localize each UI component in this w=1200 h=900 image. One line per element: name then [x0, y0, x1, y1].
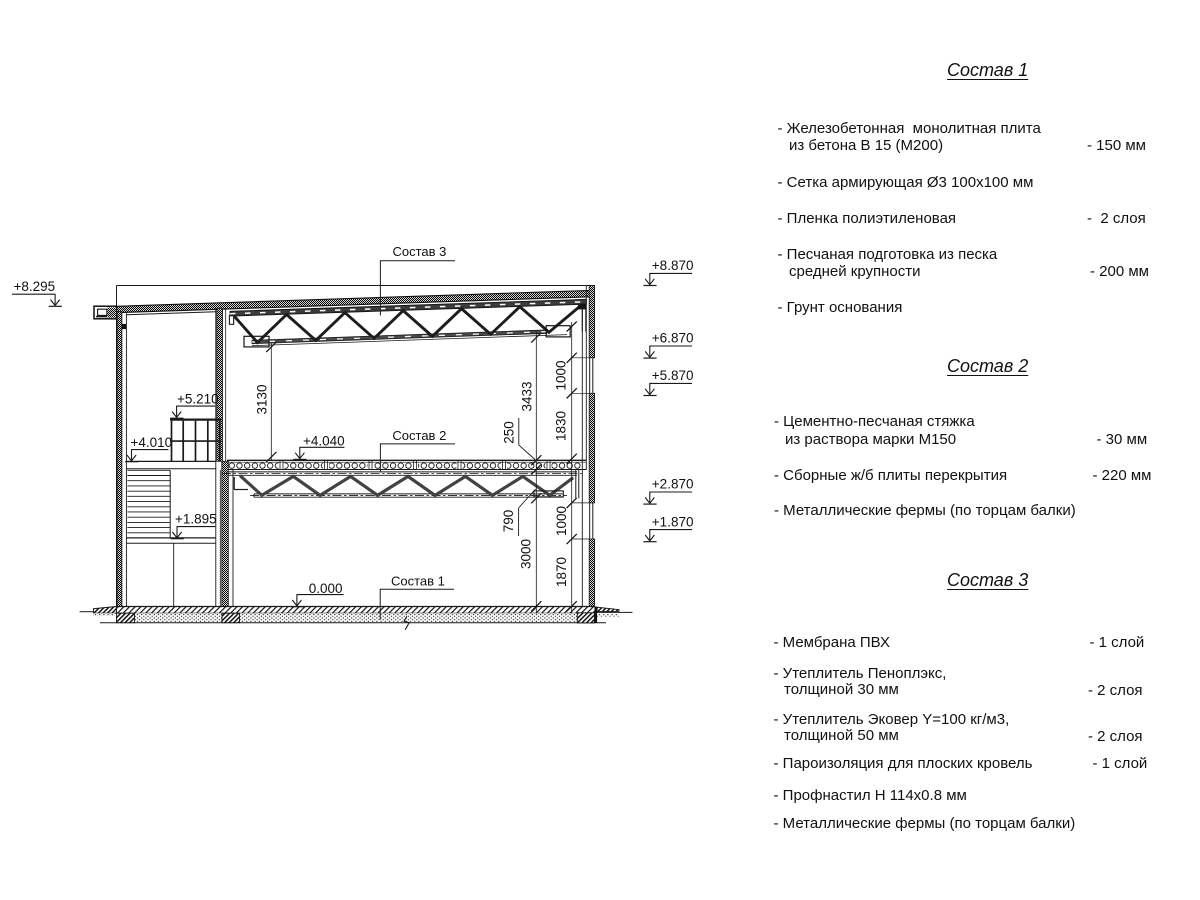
svg-text:+4.010: +4.010 — [131, 435, 173, 450]
svg-text:0.000: 0.000 — [309, 581, 343, 596]
svg-text:1000: 1000 — [554, 360, 569, 390]
svg-text:3433: 3433 — [520, 381, 535, 411]
svg-text:+5.870: +5.870 — [652, 368, 694, 383]
svg-text:+6.870: +6.870 — [652, 331, 694, 346]
svg-text:Состав 3: Состав 3 — [393, 244, 447, 259]
svg-text:250: 250 — [502, 421, 517, 444]
svg-text:3130: 3130 — [255, 384, 270, 414]
svg-text:790: 790 — [501, 510, 516, 533]
svg-text:1000: 1000 — [554, 506, 569, 536]
svg-text:+5.210: +5.210 — [177, 392, 219, 407]
svg-text:+1.870: +1.870 — [652, 514, 694, 529]
svg-text:+2.870: +2.870 — [652, 477, 694, 492]
svg-text:1870: 1870 — [554, 557, 569, 587]
svg-text:Состав 1: Состав 1 — [391, 574, 445, 589]
svg-text:+8.870: +8.870 — [652, 258, 694, 273]
svg-text:+8.295: +8.295 — [14, 279, 56, 294]
svg-text:Состав 2: Состав 2 — [392, 428, 446, 443]
svg-text:3000: 3000 — [519, 539, 534, 569]
svg-text:1830: 1830 — [554, 411, 569, 441]
svg-text:+1.895: +1.895 — [175, 512, 217, 527]
svg-text:+4.040: +4.040 — [303, 434, 345, 449]
